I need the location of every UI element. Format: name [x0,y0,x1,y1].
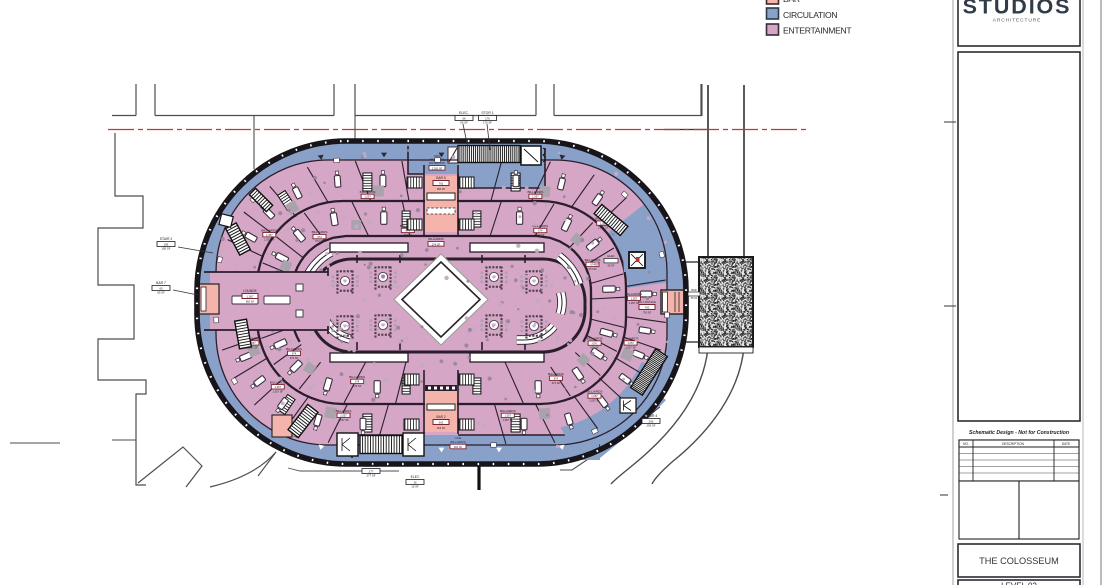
svg-text:674 SF: 674 SF [315,239,324,243]
svg-text:(BILLIARDS): (BILLIARDS) [450,440,466,444]
svg-text:BILLIARDS: BILLIARDS [626,292,642,296]
svg-text:BAR 7: BAR 7 [156,281,166,285]
svg-text:THE COLOSSEUM: THE COLOSSEUM [979,556,1059,566]
svg-text:362 SF: 362 SF [437,426,446,430]
svg-text:674: 674 [554,376,559,380]
svg-text:BILLIARDS: BILLIARDS [360,190,376,194]
svg-text:750: 750 [645,306,650,310]
svg-text:674 SF: 674 SF [588,267,597,271]
svg-text:674: 674 [292,352,297,356]
svg-text:LEVEL 02: LEVEL 02 [1001,582,1037,585]
svg-text:674 SF: 674 SF [353,384,362,388]
svg-text:1,057 SF: 1,057 SF [273,389,284,393]
svg-text:BILLIARDS: BILLIARDS [261,228,277,232]
svg-text:674 SF: 674 SF [536,233,545,237]
svg-text:674 SF: 674 SF [404,233,413,237]
svg-text:BAR: BAR [783,0,800,4]
svg-text:1,057: 1,057 [532,195,539,199]
svg-text:BILLIARDS: BILLIARDS [336,409,352,413]
svg-text:BILLIARDS: BILLIARDS [349,375,365,379]
svg-text:674: 674 [355,380,360,384]
svg-text:750 SF: 750 SF [643,311,652,315]
svg-text:CIRCULATION: CIRCULATION [783,10,837,20]
svg-text:1,057 SF: 1,057 SF [338,418,349,422]
svg-text:1,057 SF: 1,057 SF [264,237,275,241]
svg-text:65 SF: 65 SF [691,297,698,300]
svg-text:STAIR 2: STAIR 2 [160,237,173,241]
svg-text:DESCRIPTION: DESCRIPTION [1002,442,1024,446]
svg-text:BILLIARDS: BILLIARDS [587,337,603,341]
svg-text:56 SF: 56 SF [460,121,468,125]
svg-text:STAIR 3: STAIR 3 [365,464,378,468]
svg-text:761: 761 [439,182,444,186]
svg-text:1,057 SF: 1,057 SF [503,418,514,422]
svg-text:1,057 SF: 1,057 SF [598,226,609,230]
svg-text:1,057 SF: 1,057 SF [362,199,373,203]
svg-text:Schematic Design - Not for Con: Schematic Design - Not for Construction [969,430,1069,436]
svg-text:BILLIARDS: BILLIARDS [587,390,603,394]
svg-text:NO.: NO. [963,442,969,446]
svg-text:ELEC: ELEC [411,475,420,479]
svg-text:1,057: 1,057 [275,385,282,389]
svg-text:BILLIARDS: BILLIARDS [286,347,302,351]
svg-text:674 SF: 674 SF [590,346,599,350]
svg-text:277 SF: 277 SF [366,474,375,478]
svg-text:DATE: DATE [1062,442,1070,446]
svg-text:674: 674 [317,235,322,239]
svg-text:674 SF: 674 SF [552,381,561,385]
svg-text:BILLIARDS: BILLIARDS [312,230,328,234]
svg-text:1,057: 1,057 [631,296,638,300]
svg-text:16 SF: 16 SF [411,485,419,489]
svg-text:BAR: BAR [691,288,696,292]
svg-text:ARCHITECTURE: ARCHITECTURE [993,18,1041,24]
svg-text:176 SF: 176 SF [483,121,492,125]
svg-text:65 SF: 65 SF [608,265,615,268]
svg-text:BILLIARDS: BILLIARDS [548,372,564,376]
svg-text:LOUNGE: LOUNGE [243,289,256,293]
svg-text:STOR 1: STOR 1 [481,111,493,115]
svg-text:850 SF: 850 SF [246,300,255,304]
svg-text:1,057 SF: 1,057 SF [589,399,600,403]
svg-text:2,300 SF: 2,300 SF [432,166,443,170]
svg-text:674: 674 [592,341,597,345]
svg-text:ELEC.: ELEC. [459,111,469,115]
svg-text:BILLIARDS: BILLIARDS [428,237,443,241]
svg-text:ELEC: ELEC [607,254,614,258]
svg-text:1,057 SF: 1,057 SF [625,346,636,350]
svg-text:1,057: 1,057 [266,233,273,237]
svg-text:1,057: 1,057 [591,394,598,398]
svg-text:1,057: 1,057 [364,195,371,199]
svg-text:274 SF: 274 SF [432,242,441,246]
svg-text:BILLIARDS: BILLIARDS [500,409,516,413]
svg-text:900 SF: 900 SF [454,445,463,449]
svg-text:1,057: 1,057 [340,414,347,418]
svg-text:STAIR 4: STAIR 4 [645,414,658,418]
svg-text:674 SF: 674 SF [290,356,299,360]
svg-text:380 SF: 380 SF [437,187,446,191]
svg-text:362: 362 [439,421,444,425]
svg-text:295 SF: 295 SF [646,424,655,428]
svg-text:185 SF: 185 SF [161,247,170,251]
svg-text:BAR 5: BAR 5 [436,176,445,180]
svg-text:1,057: 1,057 [627,341,634,345]
svg-text:1,057: 1,057 [247,295,254,299]
svg-text:STUDIOS: STUDIOS [963,0,1072,19]
svg-text:BILLIARDS: BILLIARDS [270,380,286,384]
svg-text:674: 674 [538,229,543,233]
svg-text:BH LOUNGE: BH LOUNGE [638,300,656,304]
svg-text:BAR 2: BAR 2 [436,415,445,419]
svg-text:65 SF: 65 SF [157,291,165,295]
svg-text:1,057: 1,057 [505,414,512,418]
svg-text:ENTERTAINMENT: ENTERTAINMENT [783,25,852,35]
svg-text:BILLIARDS: BILLIARDS [585,258,601,262]
svg-text:BILLIARDS: BILLIARDS [527,190,543,194]
